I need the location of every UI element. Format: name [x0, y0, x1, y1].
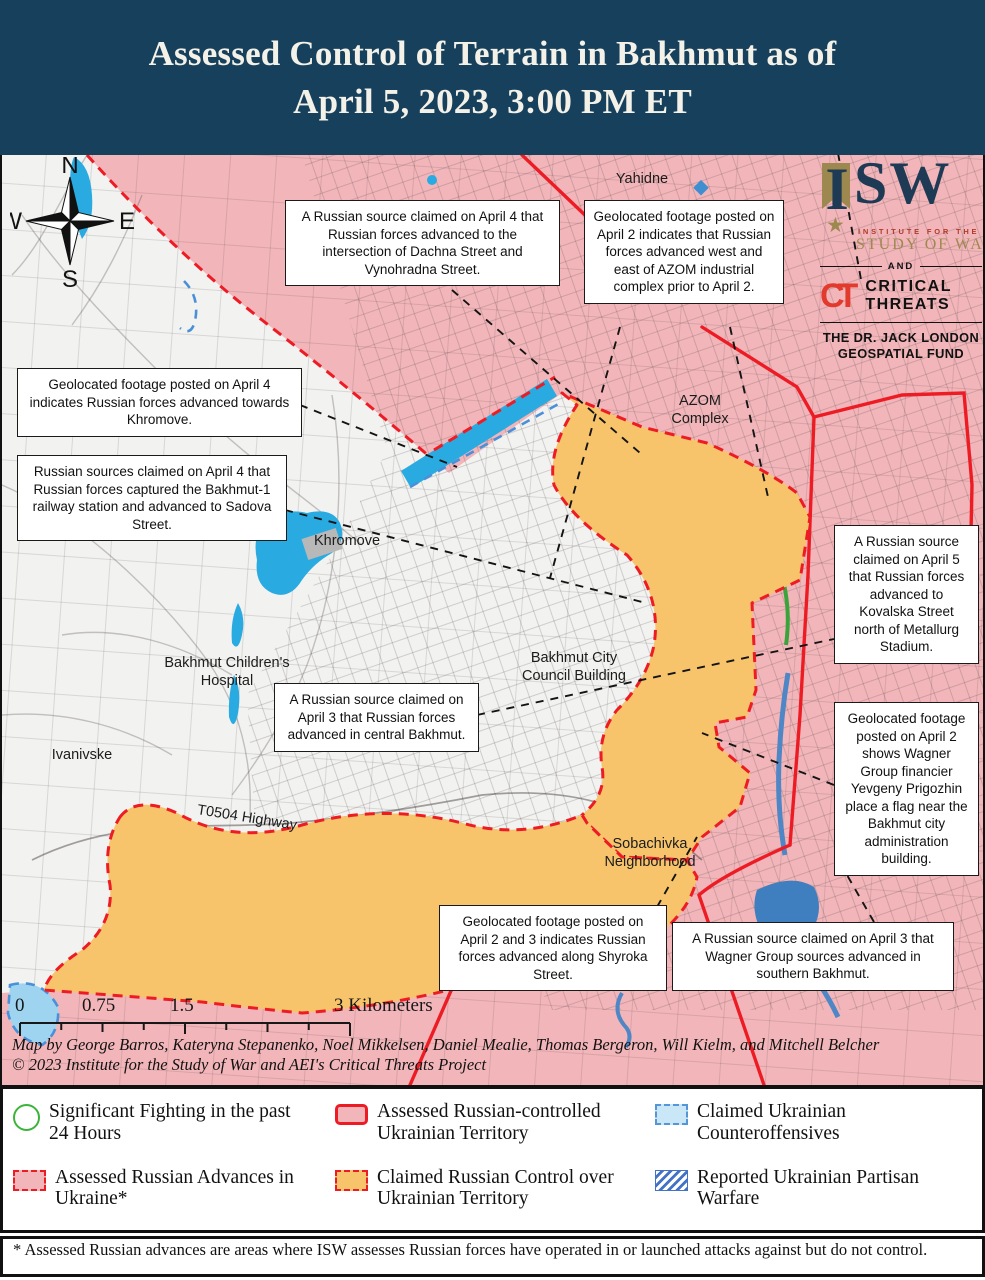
- callout-prigozhin-flag: Geolocated footage posted on April 2 sho…: [834, 702, 979, 876]
- compass-s-label: S: [62, 266, 78, 289]
- scale-tick-075: 0.75: [82, 995, 115, 1017]
- map-area: N E S W I ★ SW INSTITUTE FOR THE STUDY O…: [0, 155, 985, 1085]
- isw-bakhmut-map-page: Assessed Control of Terrain in Bakhmut a…: [0, 0, 985, 1280]
- isw-star-icon: ★: [826, 213, 845, 238]
- callout-azom-complex: Geolocated footage posted on April 2 ind…: [584, 200, 784, 304]
- footnote: * Assessed Russian advances are areas wh…: [0, 1236, 985, 1277]
- page-title-line1: Assessed Control of Terrain in Bakhmut a…: [149, 30, 837, 77]
- isw-institute-text: INSTITUTE FOR THE: [858, 227, 982, 236]
- compass-n-label: N: [61, 157, 78, 179]
- blue-dashed-swatch-icon: [655, 1104, 688, 1125]
- attribution-authors: Map by George Barros, Kateryna Stepanenk…: [12, 1035, 977, 1055]
- callout-bakhmut1-station: Russian sources claimed on April 4 that …: [17, 455, 287, 541]
- place-label-khromove: Khromove: [314, 532, 380, 550]
- attribution-copyright: © 2023 Institute for the Study of War an…: [12, 1055, 977, 1075]
- place-label-sobachivka: Sobachivka Neighborhood: [583, 835, 718, 871]
- compass-w-label: W: [10, 208, 22, 235]
- green-ellipse-swatch-icon: [13, 1104, 40, 1131]
- blue-hatch-swatch-icon: [655, 1170, 688, 1191]
- scale-tick-0: 0: [15, 995, 25, 1017]
- isw-letters-sw: SW: [854, 155, 951, 212]
- logo-divider: [820, 322, 982, 323]
- ct-threats-label: THREATS: [865, 296, 952, 314]
- legend-item-significant-fighting: Significant Fighting in the past 24 Hour…: [13, 1101, 335, 1159]
- legend-item-russian-controlled: Assessed Russian-controlled Ukrainian Te…: [335, 1101, 655, 1159]
- map-attribution: Map by George Barros, Kateryna Stepanenk…: [12, 1035, 977, 1076]
- map-legend: Significant Fighting in the past 24 Hour…: [0, 1085, 985, 1233]
- legend-item-partisan-warfare: Reported Ukrainian Partisan Warfare: [655, 1167, 972, 1225]
- callout-central-bakhmut: A Russian source claimed on April 3 that…: [274, 683, 479, 752]
- isw-logo: I ★ SW: [820, 161, 982, 225]
- legend-item-russian-advances: Assessed Russian Advances in Ukraine*: [13, 1167, 335, 1225]
- title-bar: Assessed Control of Terrain in Bakhmut a…: [0, 0, 985, 155]
- ct-critical-label: CRITICAL: [865, 278, 952, 296]
- callout-kovalska-street: A Russian source claimed on April 5 that…: [834, 525, 979, 664]
- fund-name-line2: GEOSPATIAL FUND: [820, 346, 982, 363]
- legend-item-claimed-russian-control: Claimed Russian Control over Ukrainian T…: [335, 1167, 655, 1225]
- scale-tick-3km: 3 Kilometers: [334, 995, 433, 1017]
- legend-label: Claimed Russian Control over Ukrainian T…: [377, 1167, 642, 1211]
- ct-monogram-icon: CT: [820, 281, 859, 312]
- scale-tick-15: 1.5: [170, 995, 194, 1017]
- critical-threats-logo: CT CRITICAL THREATS: [820, 278, 982, 314]
- callout-southern-bakhmut: A Russian source claimed on April 3 that…: [672, 922, 954, 991]
- pink-solid-swatch-icon: [335, 1104, 368, 1125]
- isw-ct-logo: I ★ SW INSTITUTE FOR THE STUDY OF WAR AN…: [820, 161, 982, 363]
- legend-item-ukrainian-counteroffensives: Claimed Ukrainian Counteroffensives: [655, 1101, 972, 1159]
- callout-khromove: Geolocated footage posted on April 4 ind…: [17, 368, 302, 437]
- pink-dashed-swatch-icon: [13, 1170, 46, 1191]
- compass-e-label: E: [119, 208, 134, 235]
- fund-name-line1: THE DR. JACK LONDON: [820, 330, 982, 347]
- compass-rose-icon: N E S W: [10, 157, 134, 289]
- callout-shyroka-street: Geolocated footage posted on April 2 and…: [439, 905, 667, 991]
- place-label-azom-complex: AZOM Complex: [653, 392, 748, 428]
- place-label-yahidne: Yahidne: [616, 170, 668, 188]
- isw-study-of-war-text: STUDY OF WAR: [856, 236, 982, 254]
- callout-dachna-street: A Russian source claimed on April 4 that…: [285, 200, 560, 286]
- page-title-line2: April 5, 2023, 3:00 PM ET: [293, 78, 692, 125]
- yellow-dashed-swatch-icon: [335, 1170, 368, 1191]
- legend-label: Claimed Ukrainian Counteroffensives: [697, 1101, 962, 1145]
- place-label-ivanivske: Ivanivske: [52, 746, 112, 764]
- legend-label: Significant Fighting in the past 24 Hour…: [49, 1101, 314, 1145]
- and-label: AND: [888, 261, 915, 272]
- legend-label: Assessed Russian Advances in Ukraine*: [55, 1167, 320, 1211]
- place-label-city-council: Bakhmut City Council Building: [507, 649, 642, 685]
- legend-label: Reported Ukrainian Partisan Warfare: [697, 1167, 962, 1211]
- legend-label: Assessed Russian-controlled Ukrainian Te…: [377, 1101, 642, 1145]
- and-separator: AND: [820, 261, 982, 272]
